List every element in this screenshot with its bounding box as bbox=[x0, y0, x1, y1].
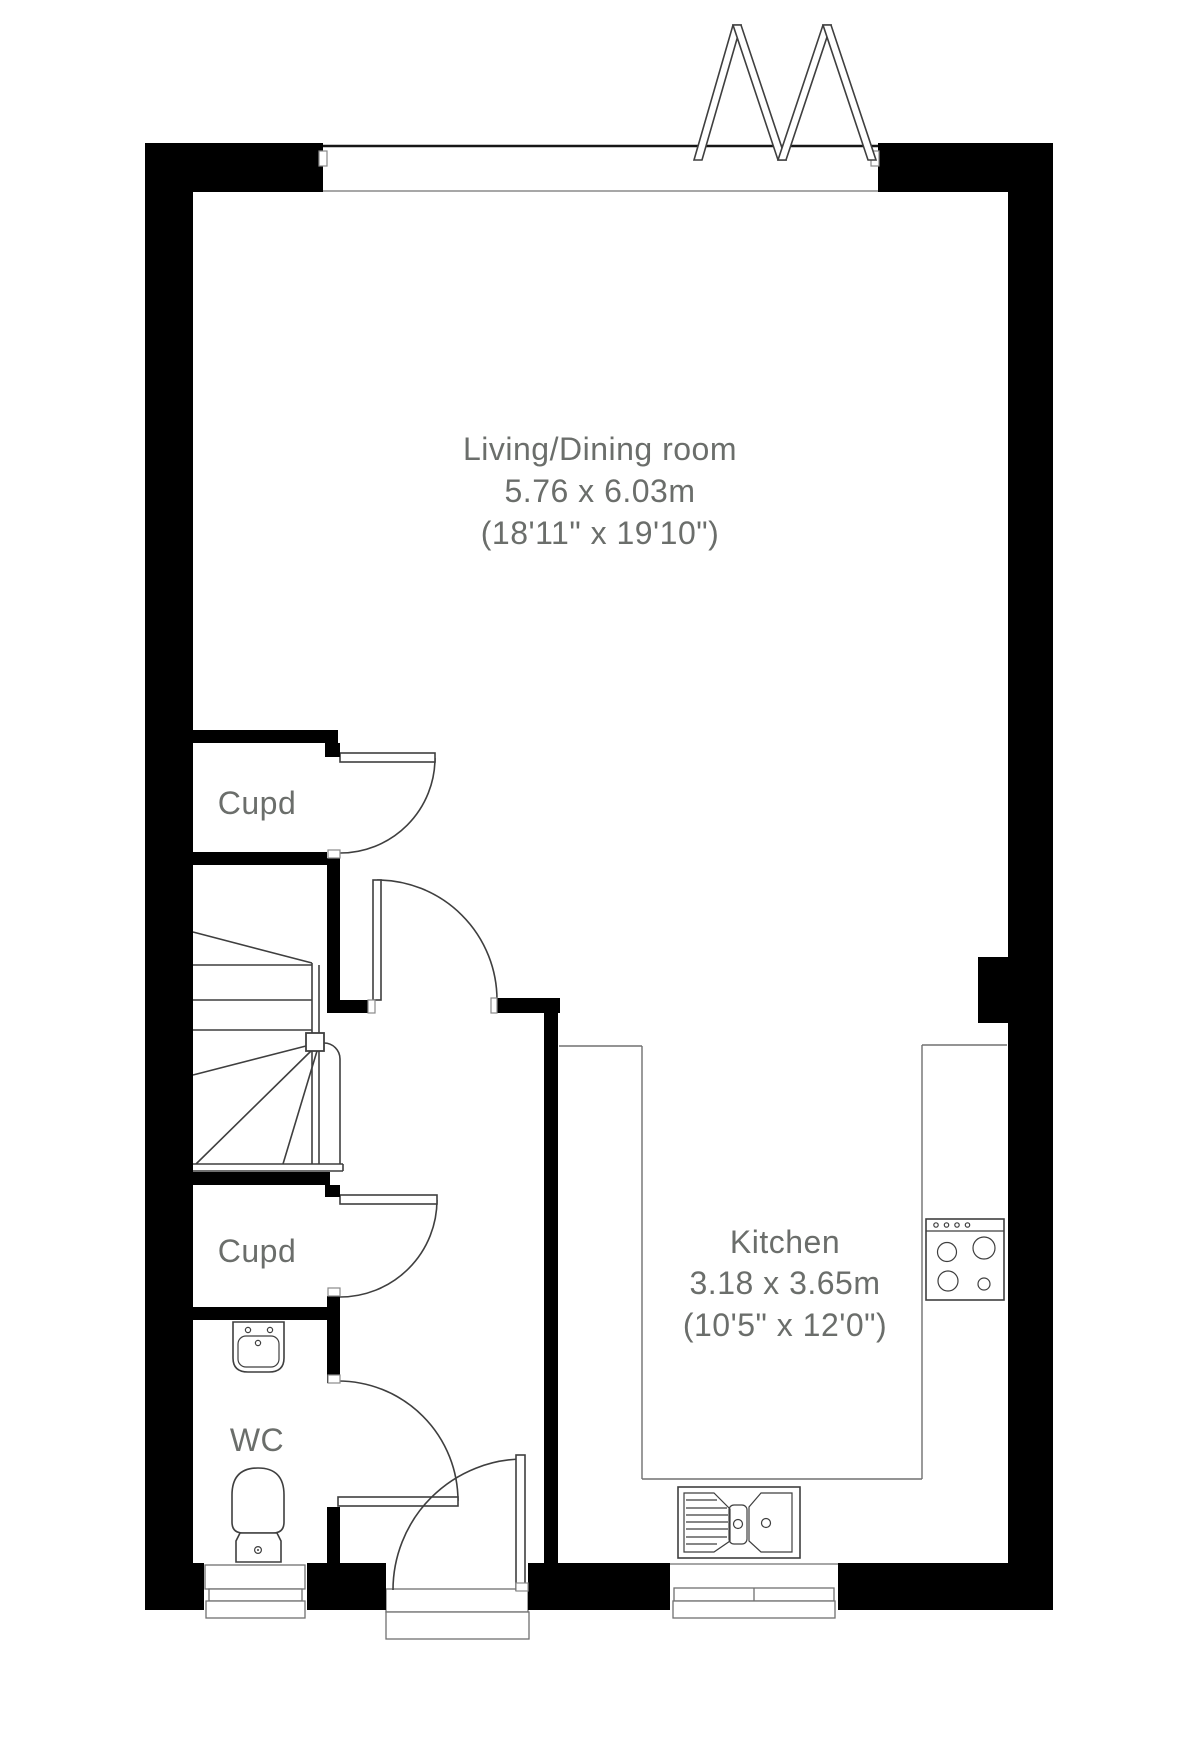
newel-post bbox=[306, 1033, 324, 1051]
living-room-size-imperial: (18'11" x 19'10") bbox=[481, 515, 720, 551]
living-room-size-metric: 5.76 x 6.03m bbox=[505, 473, 696, 509]
kitchen-size-metric: 3.18 x 3.65m bbox=[690, 1265, 881, 1301]
toilet-icon bbox=[232, 1468, 284, 1562]
cupboard-lower-label: Cupd bbox=[218, 1233, 297, 1269]
wc-label: WC bbox=[230, 1422, 284, 1458]
wc-window bbox=[205, 1565, 305, 1618]
floor-plan-page: Living/Dining room 5.76 x 6.03m (18'11" … bbox=[0, 0, 1200, 1757]
floor-plan: Living/Dining room 5.76 x 6.03m (18'11" … bbox=[0, 0, 1200, 1757]
front-door-step bbox=[386, 1589, 529, 1639]
living-room-label: Living/Dining room bbox=[463, 431, 737, 467]
kitchen-label: Kitchen bbox=[730, 1224, 840, 1260]
hob-icon bbox=[926, 1219, 1004, 1300]
basin-icon bbox=[233, 1322, 284, 1372]
window-top bbox=[323, 144, 878, 191]
kitchen-size-imperial: (10'5" x 12'0") bbox=[683, 1307, 887, 1343]
wall-pier bbox=[978, 957, 1008, 1023]
kitchen-sink-icon bbox=[678, 1487, 800, 1558]
cupboard-upper-label: Cupd bbox=[218, 785, 297, 821]
